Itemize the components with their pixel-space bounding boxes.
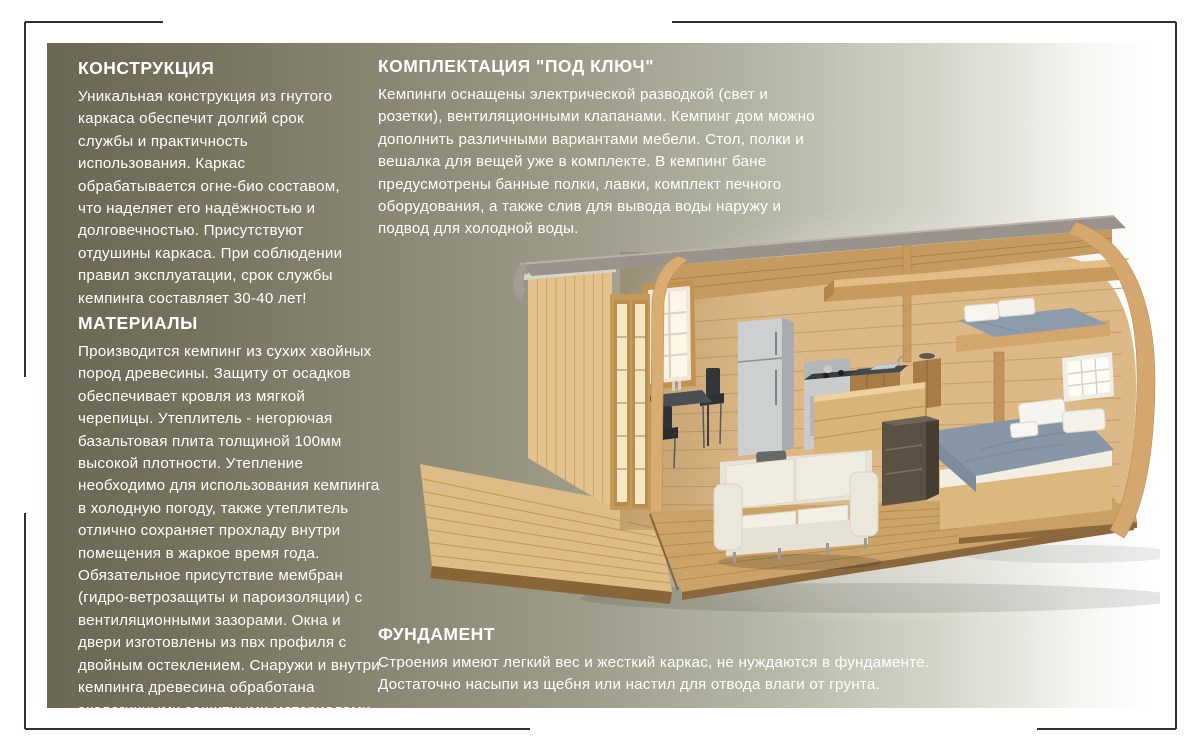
support-post — [903, 246, 911, 362]
dresser — [882, 416, 939, 506]
section-body: Строения имеют легкий вес и жесткий карк… — [378, 652, 978, 697]
brochure-page: КОНСТРУКЦИЯ Уникальная конструкция из гн… — [0, 0, 1200, 750]
end-wall — [528, 266, 612, 508]
section-foundation: ФУНДАМЕНТ Строения имеют легкий вес и же… — [378, 624, 978, 697]
section-title: КОМПЛЕКТАЦИЯ "ПОД КЛЮЧ" — [378, 56, 838, 77]
section-body: Производится кемпинг из сухих хвойных по… — [78, 341, 418, 722]
glazed-door — [610, 294, 650, 510]
camping-house-illustration — [420, 200, 1160, 620]
window-right — [1062, 352, 1114, 402]
section-construction: КОНСТРУКЦИЯ Уникальная конструкция из гн… — [78, 58, 408, 310]
section-title: КОНСТРУКЦИЯ — [78, 58, 408, 79]
section-body: Уникальная конструкция из гнутого каркас… — [78, 86, 408, 310]
section-title: МАТЕРИАЛЫ — [78, 313, 418, 334]
fridge — [738, 318, 794, 456]
window-left — [642, 280, 696, 390]
section-title: ФУНДАМЕНТ — [378, 624, 978, 645]
section-materials: МАТЕРИАЛЫ Производится кемпинг из сухих … — [78, 313, 418, 722]
